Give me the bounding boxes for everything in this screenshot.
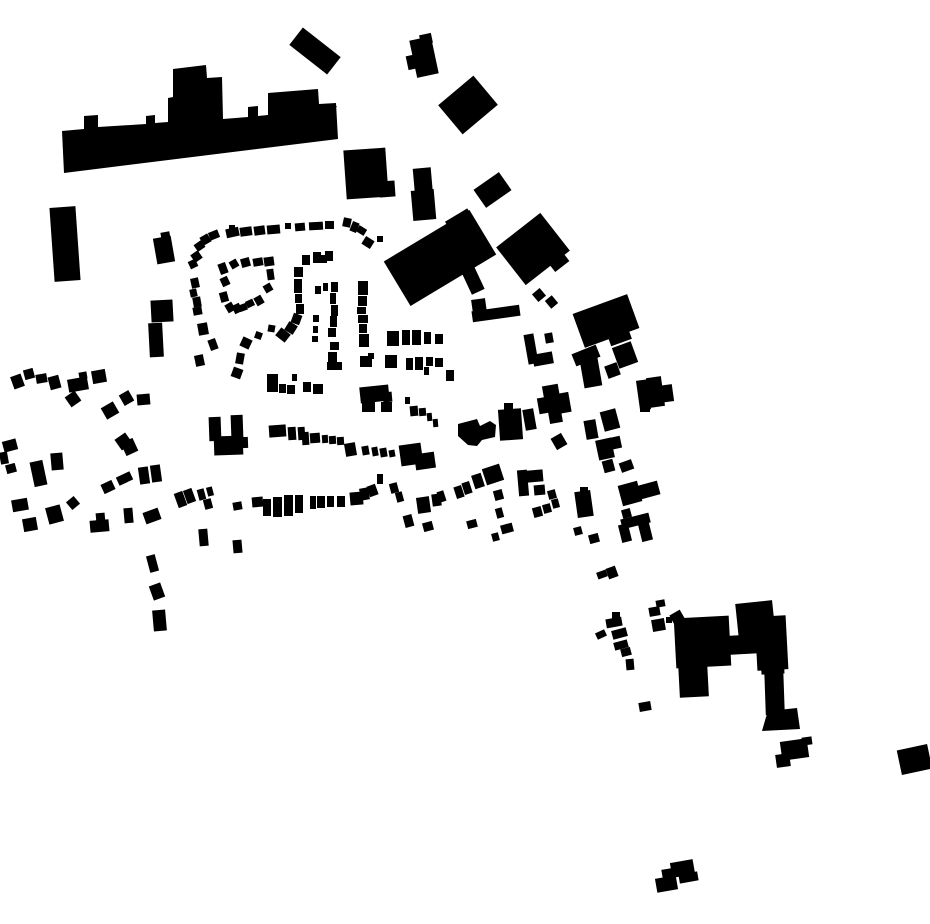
building-footprint — [229, 225, 235, 230]
building-footprint — [49, 206, 80, 282]
building-footprint — [91, 369, 107, 384]
building-footprint — [217, 262, 228, 275]
building-footprint — [337, 437, 345, 445]
building-footprint — [279, 384, 286, 393]
building-footprint — [764, 668, 785, 716]
building-footprint — [661, 868, 672, 879]
building-footprint — [219, 276, 230, 288]
figure-ground-svg — [0, 0, 930, 924]
building-footprint — [410, 406, 419, 417]
building-footprint — [263, 499, 271, 516]
building-footprint — [495, 507, 504, 518]
building-footprint — [263, 256, 274, 266]
building-footprint — [240, 257, 251, 268]
building-footprint — [424, 332, 431, 344]
building-footprint — [327, 496, 334, 507]
building-footprint — [252, 497, 264, 508]
building-footprint — [551, 433, 568, 450]
building-footprint — [2, 438, 18, 452]
building-footprint — [303, 382, 311, 392]
building-footprint — [50, 453, 63, 471]
building-footprint — [379, 447, 387, 457]
building-footprint — [458, 419, 496, 446]
building-footprint — [383, 392, 393, 403]
building-footprint — [197, 322, 209, 336]
building-footprint — [30, 460, 48, 487]
building-footprint — [388, 450, 395, 458]
building-footprint — [284, 495, 293, 516]
building-footprint — [116, 471, 133, 485]
building-footprint — [378, 180, 395, 197]
building-footprint — [190, 277, 200, 288]
building-footprint — [11, 498, 29, 513]
building-footprint — [203, 498, 213, 510]
building-footprint — [285, 223, 291, 229]
building-footprint — [229, 259, 240, 270]
building-footprint — [619, 459, 635, 473]
building-footprint — [415, 357, 423, 370]
building-footprint — [411, 189, 437, 221]
building-footprint — [100, 480, 115, 494]
building-footprint — [331, 282, 338, 292]
building-footprint — [45, 504, 64, 524]
building-footprint — [214, 435, 244, 455]
building-footprint — [655, 599, 665, 607]
building-footprint — [500, 523, 514, 535]
building-footprint — [325, 221, 334, 229]
building-footprint — [150, 299, 173, 322]
building-footprint — [358, 281, 368, 295]
building-footprint — [160, 231, 170, 240]
building-footprint — [302, 432, 310, 445]
building-footprint — [330, 342, 339, 350]
building-footprint — [10, 374, 25, 390]
building-footprint — [198, 529, 208, 547]
building-footprint — [101, 401, 120, 419]
building-footprint — [322, 435, 329, 443]
building-footprint — [542, 503, 552, 514]
building-footprint — [149, 582, 165, 600]
building-footprint — [189, 288, 198, 297]
building-footprint — [638, 481, 661, 500]
building-footprint — [315, 286, 321, 294]
building-footprint — [801, 736, 812, 745]
building-footprint — [310, 496, 316, 509]
building-footprint — [419, 408, 427, 417]
building-footprint — [313, 315, 319, 322]
building-footprint — [545, 295, 558, 308]
building-footprint — [381, 402, 392, 412]
building-footprint — [583, 419, 598, 440]
building-footprint — [192, 296, 202, 307]
building-footprint — [588, 533, 600, 544]
building-footprint — [267, 324, 275, 332]
building-footprint — [638, 522, 653, 542]
building-footprint — [527, 469, 544, 482]
building-footprint — [361, 236, 374, 249]
building-footprint — [640, 403, 650, 412]
building-footprint — [232, 501, 242, 510]
building-footprint — [267, 224, 281, 234]
building-footprint — [309, 222, 323, 231]
building-footprint — [580, 487, 588, 493]
building-footprint — [232, 540, 242, 554]
building-footprint — [547, 489, 557, 500]
building-footprint — [775, 753, 791, 768]
building-footprint — [66, 496, 80, 510]
building-footprint — [252, 257, 263, 267]
building-footprint — [295, 223, 306, 232]
building-footprint — [90, 519, 110, 533]
building-footprint — [119, 390, 135, 406]
building-footprint — [194, 354, 205, 367]
building-footprint — [288, 427, 297, 441]
building-footprint — [361, 445, 369, 455]
building-footprint — [389, 482, 399, 494]
building-footprint — [313, 326, 318, 333]
building-footprint — [651, 618, 666, 632]
building-footprint — [493, 489, 504, 501]
building-footprint — [438, 76, 498, 135]
building-footprint — [219, 291, 229, 303]
building-footprint — [206, 486, 214, 496]
building-footprint — [148, 323, 164, 358]
building-footprint — [406, 358, 413, 370]
building-footprint — [35, 373, 47, 384]
building-footprint — [313, 384, 323, 394]
building-footprint — [292, 374, 297, 381]
building-footprint — [359, 334, 369, 347]
building-footprint — [638, 701, 651, 712]
building-footprint — [273, 497, 282, 517]
building-footprint — [532, 288, 546, 302]
building-footprint — [427, 413, 433, 421]
building-footprint — [422, 521, 434, 532]
building-footprint — [294, 279, 302, 293]
building-footprint — [384, 210, 496, 306]
building-footprint — [473, 172, 511, 208]
building-footprint — [433, 419, 439, 427]
building-footprint — [253, 225, 265, 235]
building-footprint — [544, 332, 554, 343]
building-footprint — [416, 496, 431, 514]
building-footprint — [362, 401, 375, 412]
building-footprint — [387, 331, 399, 346]
building-footprint — [146, 554, 159, 573]
building-footprint — [269, 424, 287, 437]
building-footprint — [678, 662, 709, 697]
building-footprint — [239, 336, 252, 349]
building-footprint — [596, 570, 608, 580]
building-footprint — [266, 269, 274, 281]
building-footprint — [67, 376, 89, 392]
building-footprint — [328, 328, 336, 337]
building-footprint — [317, 496, 325, 508]
building-footprint — [611, 627, 628, 640]
building-footprint — [395, 491, 404, 502]
building-footprint — [344, 442, 357, 457]
building-footprint — [78, 371, 87, 379]
building-footprint — [482, 464, 504, 486]
building-footprint — [5, 463, 17, 474]
building-footprint — [22, 517, 38, 532]
building-footprint — [65, 391, 82, 408]
building-footprint — [551, 498, 560, 509]
building-footprint — [412, 330, 421, 345]
building-footprint — [574, 490, 593, 518]
building-footprint — [289, 28, 340, 75]
building-footprint — [600, 408, 621, 431]
building-footprint — [253, 295, 264, 307]
building-footprint — [197, 488, 207, 500]
building-footprint — [142, 508, 161, 525]
building-footprint — [405, 397, 410, 404]
building-footprint — [207, 338, 218, 351]
building-footprint — [138, 466, 150, 484]
building-footprint — [231, 367, 244, 380]
building-footprint — [368, 353, 374, 359]
building-footprint — [403, 514, 415, 528]
building-footprint — [573, 294, 640, 348]
building-footprint — [573, 526, 583, 536]
building-footprint — [337, 496, 345, 507]
building-footprint — [466, 519, 478, 529]
building-footprint — [402, 330, 410, 345]
building-footprint — [323, 283, 328, 291]
building-footprint — [294, 267, 303, 277]
building-footprint — [377, 474, 383, 484]
building-footprint — [491, 532, 500, 542]
building-footprint — [325, 251, 333, 261]
building-footprint — [605, 566, 618, 580]
building-footprint — [522, 408, 536, 431]
building-footprint — [192, 306, 202, 315]
building-footprint — [618, 481, 643, 506]
building-footprint — [385, 355, 397, 368]
building-footprint — [357, 307, 366, 314]
building-footprint — [424, 367, 429, 375]
building-footprint — [414, 452, 436, 471]
building-footprint — [658, 384, 674, 403]
building-footprint — [263, 283, 274, 294]
building-footprint — [329, 436, 337, 444]
building-footprint — [331, 305, 338, 316]
building-footprint — [137, 393, 151, 405]
building-footprint — [123, 508, 133, 524]
building-footprint — [295, 495, 303, 513]
figure-ground-map — [0, 0, 930, 924]
building-footprint — [23, 368, 35, 380]
building-footprint — [446, 370, 454, 381]
building-footprint — [504, 403, 513, 410]
building-footprint — [377, 236, 383, 242]
building-footprint — [595, 629, 607, 640]
building-footprint — [426, 357, 433, 366]
building-footprint — [498, 408, 523, 441]
building-footprint — [330, 293, 336, 304]
building-footprint — [534, 485, 546, 496]
building-footprint — [342, 217, 352, 227]
building-footprint — [267, 374, 278, 392]
building-footprint — [471, 473, 485, 489]
building-footprint — [254, 331, 263, 340]
building-footprint — [287, 385, 295, 394]
building-footprint — [602, 459, 616, 473]
building-footprint — [62, 65, 338, 173]
building-footprint — [296, 304, 304, 314]
building-footprint — [310, 433, 321, 444]
building-footprint — [302, 255, 310, 265]
building-footprint — [328, 352, 337, 362]
building-footprint — [897, 744, 930, 775]
building-footprint — [48, 375, 62, 390]
building-footprint — [435, 334, 443, 344]
building-footprint — [239, 226, 252, 237]
building-footprint — [605, 617, 622, 629]
building-footprint — [358, 315, 368, 323]
building-footprint — [496, 213, 570, 285]
building-footprint — [327, 362, 342, 370]
building-footprint — [532, 506, 543, 518]
building-footprint — [152, 609, 167, 631]
building-footprint — [648, 606, 660, 617]
building-footprint — [359, 324, 367, 333]
building-footprint — [235, 352, 245, 364]
building-footprint — [242, 437, 248, 448]
building-footprint — [330, 316, 337, 327]
building-footprint — [312, 336, 318, 342]
building-footprint — [371, 447, 378, 457]
building-footprint — [435, 358, 443, 367]
building-footprint — [626, 659, 635, 671]
building-footprint — [150, 464, 162, 482]
building-footprint — [358, 296, 367, 306]
building-footprint — [295, 294, 302, 303]
building-footprint — [580, 358, 603, 389]
building-footprint — [674, 616, 732, 669]
building-footprint — [0, 451, 9, 464]
